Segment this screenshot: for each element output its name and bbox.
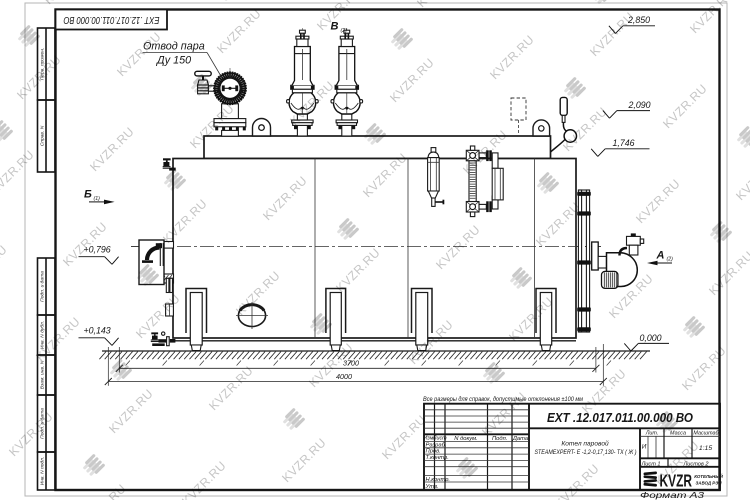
svg-text:Формат А3: Формат А3 (640, 491, 705, 500)
svg-text:ЗАВОД РЭП: ЗАВОД РЭП (695, 480, 722, 485)
svg-text:Лист: Лист (432, 436, 447, 442)
svg-text:И: И (642, 444, 647, 451)
svg-text:Инв. N подл.: Инв. N подл. (40, 457, 46, 486)
svg-text:0,000: 0,000 (640, 333, 662, 343)
svg-text:Подп.: Подп. (492, 436, 507, 442)
svg-text:Справ. N: Справ. N (40, 125, 46, 146)
svg-text:Дата: Дата (512, 436, 529, 442)
svg-text:Подп. и дата: Подп. и дата (40, 271, 46, 302)
svg-text:+0,143: +0,143 (84, 326, 111, 336)
svg-text:Пров.: Пров. (426, 449, 441, 455)
svg-text:(2): (2) (667, 257, 674, 263)
svg-text:ЕХТ .12.017.011.00.000 ВО: ЕХТ .12.017.011.00.000 ВО (63, 14, 159, 25)
svg-text:STEAMEXPERT- Е -1,2-0,17¸130-: STEAMEXPERT- Е -1,2-0,17¸130- ТХ ( Ж ) (535, 449, 637, 456)
svg-text:Масса: Масса (670, 431, 686, 437)
svg-text:(1): (1) (94, 196, 101, 202)
svg-text:КОТЕЛЬНЫЙ: КОТЕЛЬНЫЙ (694, 474, 723, 479)
svg-text:Разраб.: Разраб. (426, 442, 447, 448)
svg-text:2,090: 2,090 (628, 100, 651, 110)
svg-text:Котел паровой: Котел паровой (561, 439, 609, 447)
svg-text:Утв.: Утв. (425, 484, 439, 490)
svg-text:Масштаб: Масштаб (693, 431, 719, 437)
svg-text:Лит.: Лит. (645, 431, 659, 437)
svg-text:Б: Б (84, 189, 92, 201)
svg-text:А: А (656, 250, 665, 262)
svg-text:Ду 150: Ду 150 (156, 55, 191, 67)
svg-text:Н.контр.: Н.контр. (426, 477, 451, 483)
svg-text:(2): (2) (341, 28, 348, 34)
svg-text:Т.контр.: Т.контр. (426, 455, 449, 461)
svg-text:1,746: 1,746 (613, 138, 635, 148)
svg-text:N докум.: N докум. (454, 436, 477, 442)
svg-text:4000: 4000 (336, 372, 352, 381)
svg-text:Все размеры для справок, допус: Все размеры для справок, допустимые откл… (423, 395, 584, 403)
